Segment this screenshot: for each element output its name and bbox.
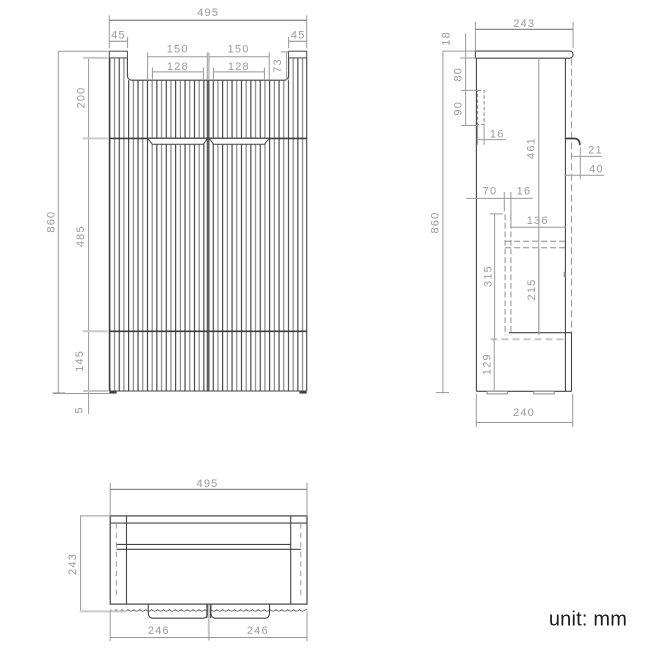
svg-text:45: 45 (111, 30, 126, 42)
svg-text:128: 128 (228, 61, 250, 73)
svg-text:200: 200 (76, 87, 88, 109)
svg-text:495: 495 (197, 7, 219, 19)
svg-text:45: 45 (291, 30, 306, 42)
svg-text:461: 461 (526, 137, 538, 159)
svg-text:246: 246 (247, 625, 269, 637)
svg-text:243: 243 (67, 553, 79, 575)
svg-text:73: 73 (272, 58, 284, 73)
svg-text:18: 18 (441, 31, 453, 46)
svg-text:128: 128 (167, 61, 189, 73)
svg-text:70: 70 (483, 185, 498, 197)
svg-text:80: 80 (453, 67, 465, 82)
svg-text:246: 246 (148, 625, 170, 637)
svg-text:150: 150 (167, 44, 189, 56)
svg-text:16: 16 (490, 128, 505, 140)
svg-text:215: 215 (526, 279, 538, 301)
svg-text:150: 150 (228, 44, 250, 56)
svg-text:90: 90 (453, 101, 465, 116)
svg-text:860: 860 (45, 211, 57, 233)
svg-text:5: 5 (74, 406, 86, 413)
svg-text:485: 485 (75, 225, 87, 247)
svg-text:136: 136 (527, 215, 549, 227)
svg-text:16: 16 (517, 185, 532, 197)
svg-text:860: 860 (429, 212, 441, 234)
svg-text:145: 145 (74, 350, 86, 372)
svg-text:315: 315 (482, 265, 494, 287)
svg-text:21: 21 (588, 145, 603, 157)
svg-text:40: 40 (589, 163, 604, 175)
svg-text:240: 240 (513, 407, 535, 419)
svg-text:495: 495 (197, 478, 219, 490)
svg-text:129: 129 (482, 353, 494, 375)
svg-text:243: 243 (513, 18, 535, 30)
svg-text:unit: mm: unit: mm (549, 609, 627, 631)
